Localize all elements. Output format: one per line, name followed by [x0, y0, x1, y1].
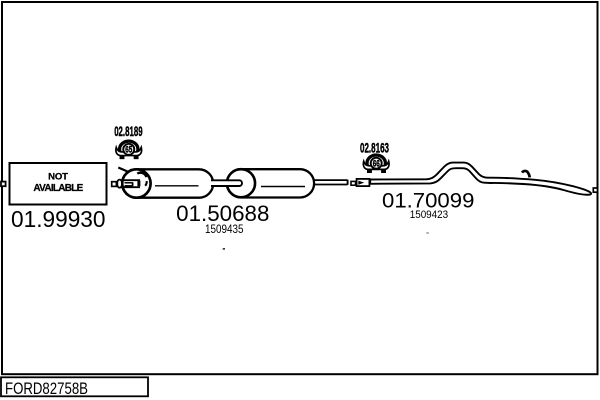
- svg-text:NOT: NOT: [48, 171, 68, 182]
- svg-text:66: 66: [373, 158, 380, 169]
- svg-text:01.99930: 01.99930: [11, 206, 106, 232]
- svg-text:1509435: 1509435: [205, 222, 244, 236]
- svg-text:1509423: 1509423: [410, 209, 449, 221]
- svg-text:AVAILABLE: AVAILABLE: [33, 183, 83, 194]
- svg-text:FORD82758B: FORD82758B: [5, 380, 88, 398]
- svg-text:65: 65: [125, 144, 132, 155]
- svg-text:02.8189: 02.8189: [114, 124, 142, 140]
